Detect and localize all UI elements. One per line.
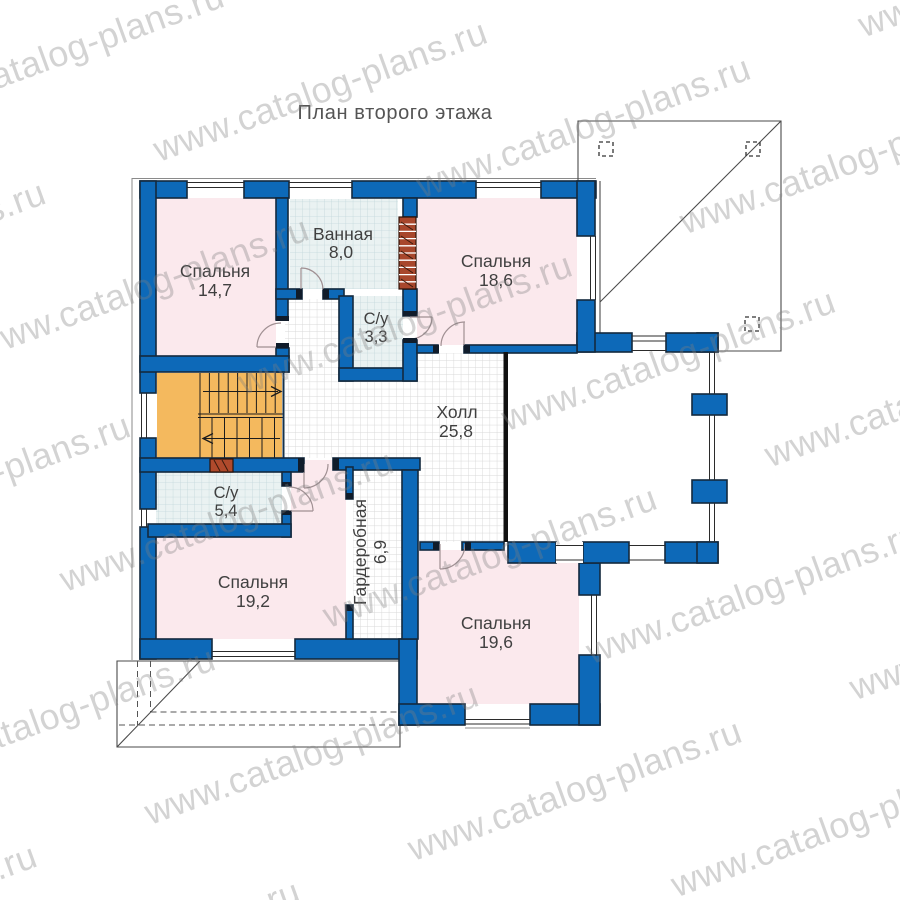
svg-text:19,2: 19,2 (236, 591, 270, 611)
svg-text:Спальня: Спальня (218, 572, 288, 592)
svg-text:8,0: 8,0 (329, 242, 354, 262)
svg-text:Спальня: Спальня (461, 613, 531, 633)
svg-text:Холл: Холл (436, 402, 477, 422)
svg-text:6,9: 6,9 (370, 540, 390, 564)
svg-text:19,6: 19,6 (479, 632, 513, 652)
svg-text:Ванная: Ванная (313, 224, 373, 244)
svg-text:25,8: 25,8 (439, 421, 473, 441)
